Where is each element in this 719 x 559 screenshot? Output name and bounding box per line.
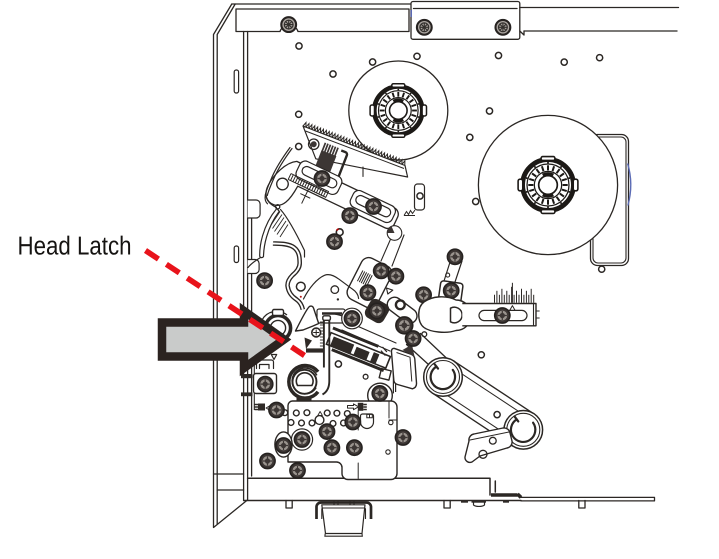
svg-text:Head Latch: Head Latch (18, 231, 132, 261)
